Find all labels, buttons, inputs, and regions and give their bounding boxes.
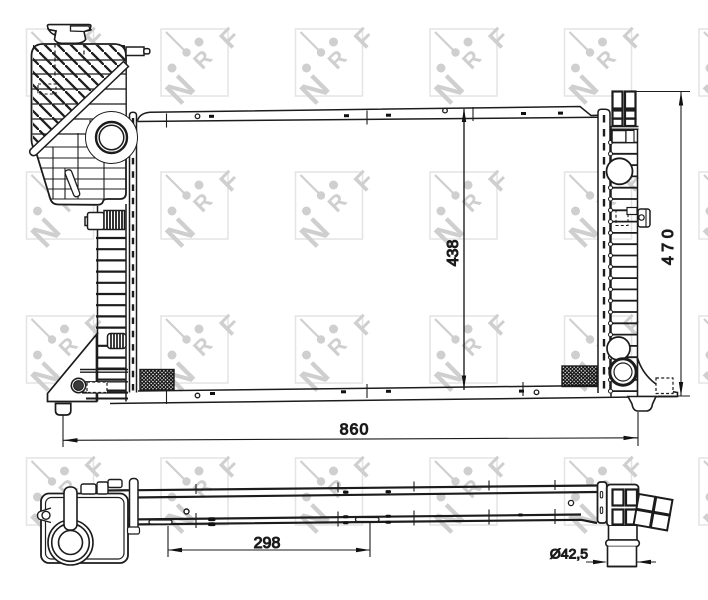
svg-text:298: 298: [254, 535, 281, 552]
svg-text:470: 470: [660, 225, 677, 265]
svg-text:860: 860: [340, 422, 370, 439]
svg-text:Ø42,5: Ø42,5: [550, 546, 588, 562]
svg-text:438: 438: [445, 240, 462, 267]
